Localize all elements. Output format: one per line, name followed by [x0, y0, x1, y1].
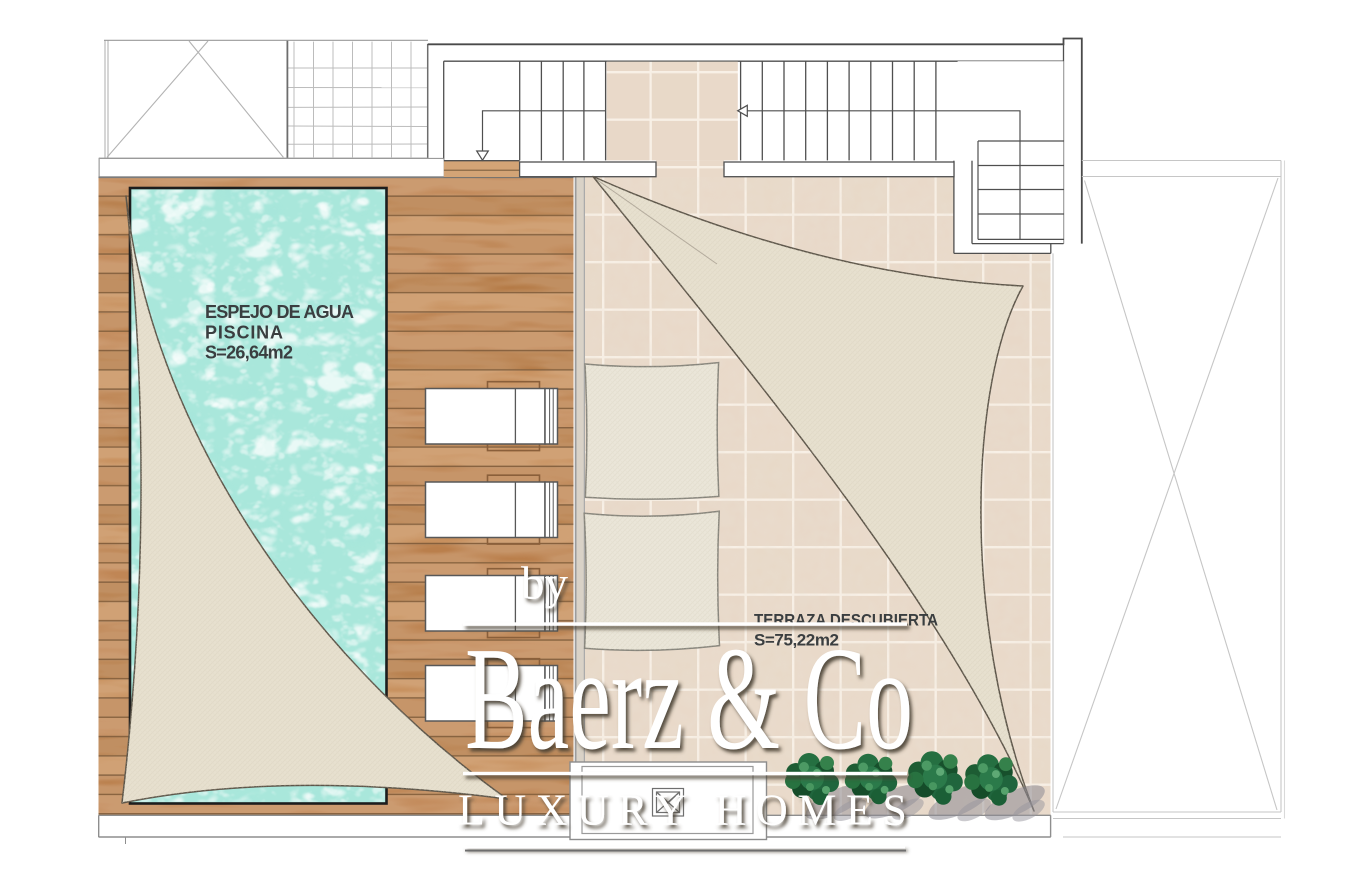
svg-text:LUXURY HOMES: LUXURY HOMES	[458, 786, 916, 835]
svg-text:by: by	[521, 558, 569, 610]
svg-text:PISCINA: PISCINA	[205, 323, 283, 343]
svg-text:S=26,64m2: S=26,64m2	[205, 343, 293, 363]
svg-text:Baerz & Co: Baerz & Co	[465, 617, 913, 781]
svg-text:ESPEJO DE AGUA: ESPEJO DE AGUA	[205, 302, 354, 322]
